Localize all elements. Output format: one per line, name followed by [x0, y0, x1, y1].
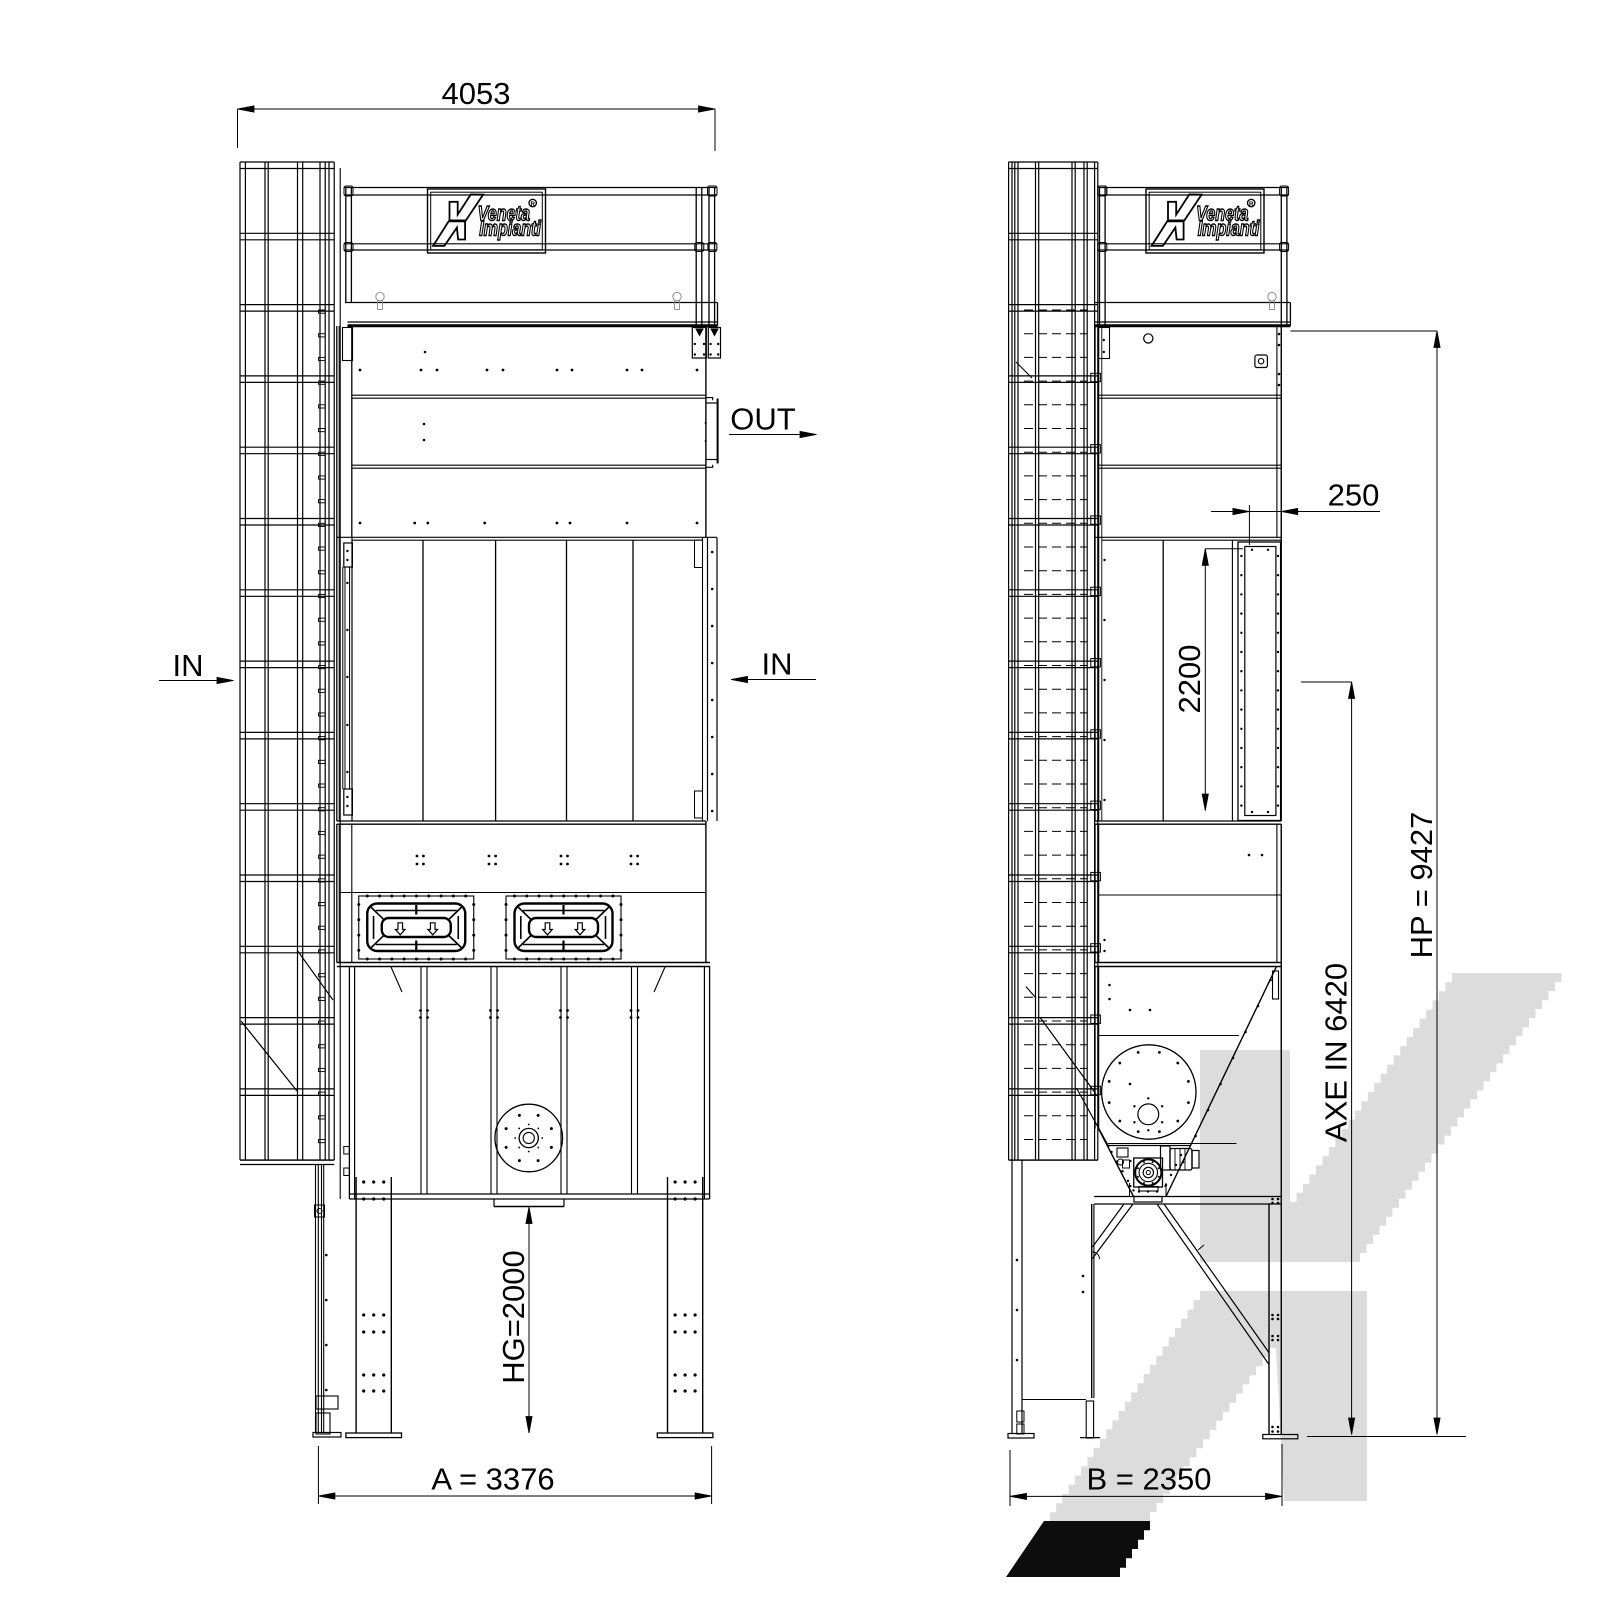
svg-text:IN: IN [762, 647, 793, 682]
svg-text:HG=2000: HG=2000 [496, 1250, 531, 1384]
svg-text:R: R [530, 201, 535, 208]
svg-text:Impianti: Impianti [479, 218, 542, 241]
svg-text:4053: 4053 [442, 76, 511, 111]
svg-text:AXE IN 6420: AXE IN 6420 [1319, 963, 1354, 1142]
svg-text:A = 3376: A = 3376 [431, 1462, 554, 1497]
svg-text:R: R [1249, 201, 1254, 208]
svg-text:250: 250 [1328, 478, 1380, 513]
svg-text:OUT: OUT [730, 402, 796, 437]
svg-text:Impianti: Impianti [1198, 218, 1261, 241]
svg-text:B = 2350: B = 2350 [1087, 1462, 1212, 1497]
svg-text:IN: IN [173, 648, 204, 683]
svg-text:2200: 2200 [1172, 645, 1207, 714]
svg-text:HP = 9427: HP = 9427 [1404, 812, 1439, 959]
